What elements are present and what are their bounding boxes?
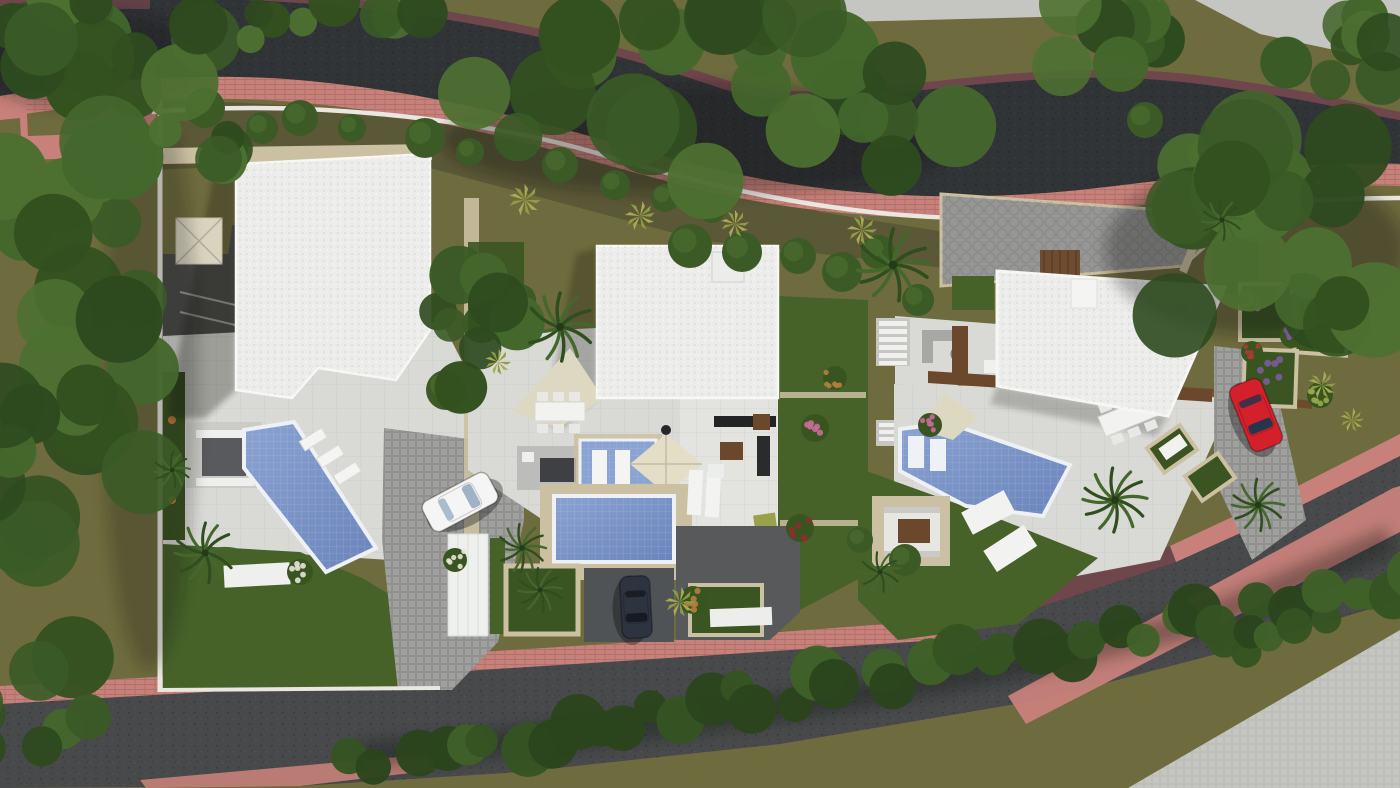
aerial-render: Aerial top-down 3D render of three-villa…: [0, 0, 1400, 788]
center-pool-water: [554, 496, 674, 562]
kitchen-counter: [922, 341, 933, 363]
rear-window: [625, 590, 646, 597]
flowering-shrub: [786, 514, 814, 542]
outdoor-sofa: [540, 458, 576, 482]
in-pool-lounger: [615, 450, 630, 486]
lounge-seat: [196, 478, 254, 486]
planter-pot: [661, 425, 671, 435]
roof-skylight: [1071, 279, 1097, 308]
site-plan-svg: Aerial top-down 3D render of three-villa…: [0, 0, 1400, 788]
windshield: [626, 613, 648, 623]
sofa-cushion: [522, 452, 534, 462]
pergola-post-beam: [952, 326, 968, 374]
flowering-shrub: [1241, 341, 1263, 363]
dining-set: [535, 392, 585, 433]
garden-bench: [223, 562, 290, 587]
south-boundary-wall: [160, 688, 440, 690]
lounge-table: [202, 438, 246, 476]
dining-table: [535, 402, 585, 421]
lounger: [687, 470, 703, 516]
in-pool-lounger: [592, 450, 607, 486]
flowering-shrub: [918, 413, 942, 437]
flowering-shrub: [287, 559, 313, 585]
small-lawn: [952, 276, 994, 310]
flowering-shrub: [823, 366, 847, 390]
palm-bed: [506, 566, 578, 634]
flowering-shrub: [801, 414, 829, 442]
lawn-strip: [490, 538, 505, 634]
flowering-shrub: [443, 548, 467, 572]
kitchen-counter: [922, 330, 956, 341]
west-roof-gravel: [236, 154, 430, 398]
in-pool-lounger: [930, 439, 946, 471]
lounger: [705, 472, 721, 518]
fire-pit-table: [898, 519, 930, 543]
low-white-wall: [710, 607, 773, 627]
in-pool-lounger: [908, 436, 924, 468]
garden-border: [780, 392, 866, 398]
